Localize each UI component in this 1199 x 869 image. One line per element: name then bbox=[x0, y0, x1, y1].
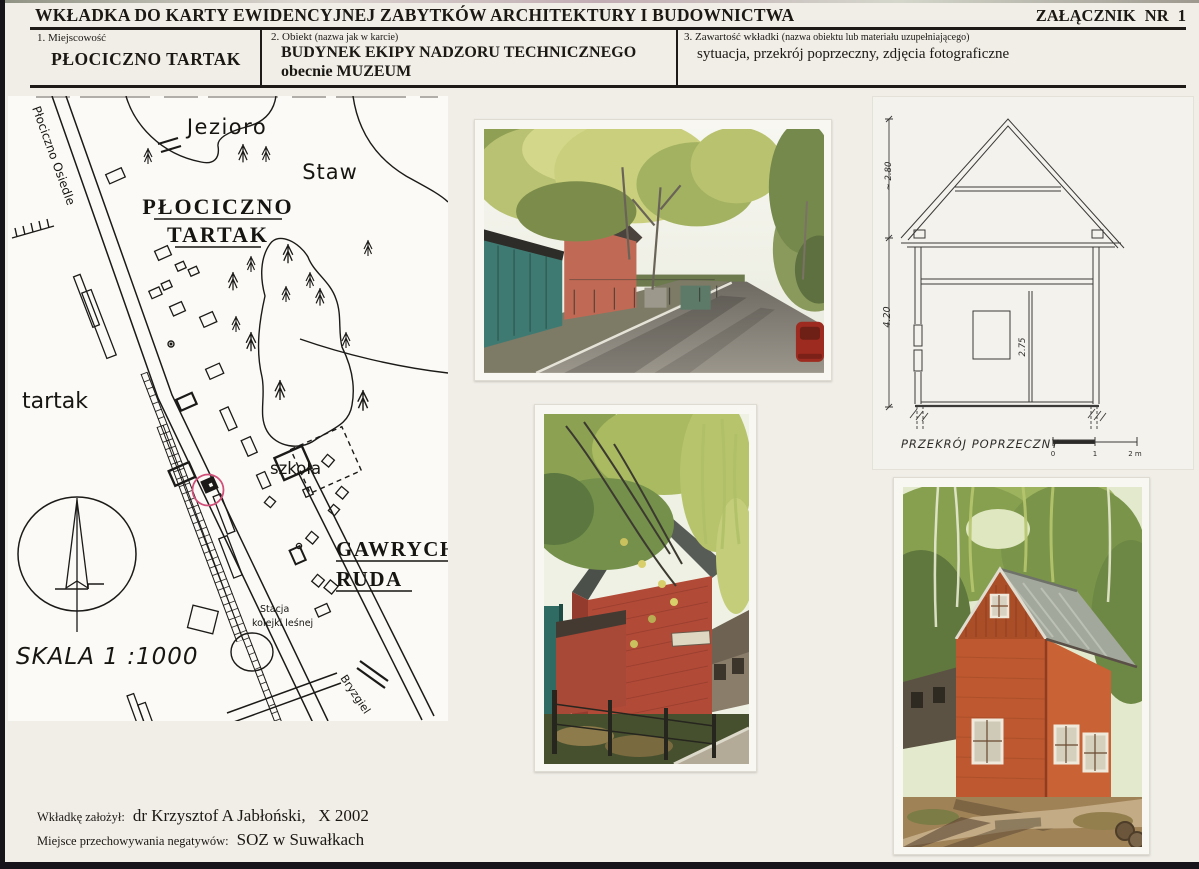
photo-museum-house bbox=[893, 477, 1150, 855]
cross-section-panel: ~ 2.80 4.20 2.75 PRZEKRÓJ POPRZECZNY 0 1… bbox=[872, 96, 1194, 470]
header-divider-1 bbox=[260, 29, 262, 85]
field-contents-value: sytuacja, przekrój poprzeczny, zdjęcia f… bbox=[697, 46, 1009, 63]
site-map-drawing: Jezioro Staw PŁOCICZNO TARTAK tartak szk… bbox=[8, 96, 448, 721]
header-divider-2 bbox=[676, 29, 678, 85]
footer-author-label: Wkładkę założył: bbox=[37, 810, 125, 824]
field-object-value-line2: obecnie MUZEUM bbox=[281, 63, 411, 81]
header-bottom-rule bbox=[30, 85, 1186, 88]
page-title: WKŁADKA DO KARTY EWIDENCYJNEJ ZABYTKÓW A… bbox=[35, 5, 795, 26]
field-object-label: 2. Obiekt (nazwa jak w karcie) bbox=[271, 31, 398, 43]
field-object-value-line1: BUDYNEK EKIPY NADZORU TECHNICZNEGO bbox=[281, 44, 636, 62]
dimension-line bbox=[885, 116, 893, 410]
section-caption: PRZEKRÓJ POPRZECZNY bbox=[901, 436, 1059, 451]
field-contents-label-note: (nazwa obiektu lub materiału uzupełniają… bbox=[782, 32, 970, 43]
title-rule bbox=[30, 27, 1186, 30]
label-tartak-small: tartak bbox=[22, 389, 88, 414]
section-roof bbox=[901, 119, 1124, 248]
label-stacja-1: Stacja bbox=[260, 604, 289, 615]
scale-tick-0: 0 bbox=[1051, 450, 1055, 458]
field-contents-label: 3. Zawartość wkładki (nazwa obiektu lub … bbox=[684, 31, 969, 43]
scale-tick-1: 1 bbox=[1093, 450, 1097, 458]
label-road-bryzgiel: Bryzgiel bbox=[338, 672, 374, 716]
scan-edge-left bbox=[0, 0, 5, 869]
footer-negatives-value: SOZ w Suwałkach bbox=[237, 830, 364, 849]
photo-street-view bbox=[474, 119, 832, 381]
scan-edge-top bbox=[0, 0, 1199, 3]
label-ruda: RUDA bbox=[336, 567, 403, 591]
dim-roof-label: ~ 2.80 bbox=[884, 162, 894, 191]
field-locality-label: 1. Miejscowość bbox=[37, 32, 106, 44]
label-tartak-caps: TARTAK bbox=[167, 222, 269, 247]
scan-edge-bottom bbox=[0, 862, 1199, 869]
photo-museum-house-image bbox=[903, 487, 1142, 847]
map-roads bbox=[52, 96, 434, 721]
compass-rose bbox=[18, 497, 136, 632]
label-skala: SKALA 1 :1000 bbox=[16, 644, 199, 670]
field-object-label-text: 2. Obiekt bbox=[271, 31, 312, 43]
footer-author-line: Wkładkę założył:dr Krzysztof A Jabłoński… bbox=[37, 806, 369, 826]
photo-building-corner bbox=[534, 404, 757, 772]
cross-section-drawing: ~ 2.80 4.20 2.75 PRZEKRÓJ POPRZECZNY 0 1… bbox=[877, 99, 1189, 464]
dim-inner-label: 2.75 bbox=[1018, 338, 1028, 357]
label-szkola: szkoła bbox=[270, 459, 321, 478]
embankment-symbol bbox=[12, 219, 54, 238]
field-object-label-note: (nazwa jak w karcie) bbox=[315, 32, 399, 43]
label-stacja-2: kolejki leśnej bbox=[252, 618, 313, 629]
label-plociczno: PŁOCICZNO bbox=[142, 194, 293, 219]
label-staw: Staw bbox=[302, 160, 358, 184]
photo-building-corner-image bbox=[544, 414, 749, 764]
footer-negatives-line: Miejsce przechowywania negatywów:SOZ w S… bbox=[37, 830, 364, 850]
site-map: Jezioro Staw PŁOCICZNO TARTAK tartak szk… bbox=[8, 96, 448, 721]
label-jezioro: Jezioro bbox=[185, 115, 267, 139]
station-circle bbox=[231, 633, 273, 671]
label-underlines bbox=[154, 219, 448, 591]
scanned-record-card: WKŁADKA DO KARTY EWIDENCYJNEJ ZABYTKÓW A… bbox=[0, 0, 1199, 869]
section-foundation bbox=[910, 406, 1106, 429]
photo-street-view-image bbox=[484, 129, 824, 373]
map-trees bbox=[144, 144, 372, 411]
well-symbol-dot bbox=[170, 343, 172, 345]
footer-author-value: dr Krzysztof A Jabłoński, X 2002 bbox=[133, 806, 369, 825]
attachment-number: ZAŁĄCZNIK NR 1 bbox=[980, 6, 1186, 26]
footer-negatives-label: Miejsce przechowywania negatywów: bbox=[37, 834, 229, 848]
field-contents-label-text: 3. Zawartość wkładki bbox=[684, 31, 779, 43]
section-walls bbox=[915, 247, 1099, 406]
dim-height-label: 4.20 bbox=[882, 306, 893, 327]
scale-tick-2: 2 m bbox=[1128, 450, 1142, 458]
section-scale-bar bbox=[1053, 437, 1137, 446]
label-road-plociczno-osiedle: Płociczno Osiedle bbox=[29, 104, 78, 207]
label-gawrych: GAWRYCH bbox=[336, 537, 448, 561]
field-locality-value: PŁOCICZNO TARTAK bbox=[40, 49, 252, 70]
